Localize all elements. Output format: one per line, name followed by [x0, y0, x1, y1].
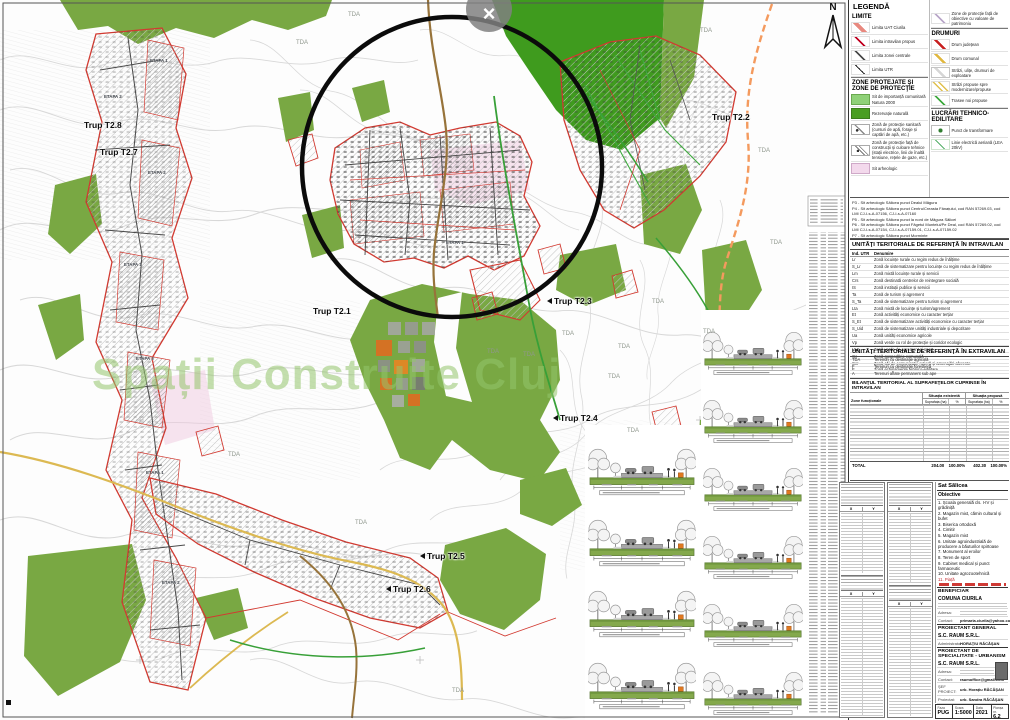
trasee-swatch: [931, 95, 950, 106]
utr-name: Terenuri cu destinație agricolă: [874, 357, 928, 362]
strazi-swatch: [931, 67, 950, 78]
compass: N: [820, 2, 846, 52]
legend-item-label: Sit de importanță comunitară Natura 2000: [872, 94, 928, 104]
bilant-table: BILANŢUL TERITORIAL AL SUPRAFEŢELOR CUPR…: [850, 378, 1009, 481]
legend-item: Limita intravilan propus: [851, 35, 928, 49]
utr-name: Zonă unități economice agricole: [874, 333, 932, 338]
utr-code: A: [852, 371, 874, 376]
legend-item: Zonă de protecție față de construcții și…: [851, 139, 928, 162]
utr-name: Zonă activități economice cu caracter te…: [874, 312, 953, 317]
bilant-total-row: TOTAL 204.00 100.00% 402.30 100.00%: [850, 461, 1009, 469]
legend-item-label: Zonă de protecție sanitară (cursuri de a…: [872, 122, 928, 137]
legend-item-label: Sit arheologic: [872, 166, 897, 171]
legend-item: Trasee noi propuse: [931, 94, 1009, 108]
utr-intravilan-title: UNITĂŢI TERITORIALE DE REFERINŢĂ ÎN INTR…: [850, 239, 1009, 250]
bilant-col-pct: %: [992, 399, 1009, 404]
legend-panel: LEGENDĂ LIMITE Limita UAT Ciurila Limita…: [848, 0, 1010, 720]
transformare-swatch: [931, 125, 950, 136]
rezervatie-swatch: [851, 108, 870, 119]
utr-row: S_Ta Zonă de sistematizare pentru turism…: [850, 298, 1009, 305]
coordinate-tables: XY XY XY XY: [839, 482, 935, 718]
utr-name: Zonă de turism și agrement: [874, 292, 924, 297]
adresa-label: Adresa:: [938, 669, 958, 674]
legend-item: Străzi propuse spre modernizare/propuse: [931, 80, 1009, 94]
coord-y-header: Y: [862, 507, 884, 511]
bilant-total-existing-pct: 100.00%: [944, 463, 965, 468]
utr-row: A Terenuri aflate permanent sub ape: [850, 371, 1009, 378]
archaeo-site-line: P6 - Sit arheologic Sălicea punct Făgetu…: [852, 222, 1007, 232]
utr-row: Et Zonă activități economice cu caracter…: [850, 312, 1009, 319]
utr-code: S_Et: [852, 319, 874, 324]
bilant-col-area: Suprafața (ha): [923, 399, 948, 404]
central-swatch: [851, 50, 870, 61]
bilant-col-pct: %: [948, 399, 965, 404]
utr-extravilan-title: UNITĂŢI TERITORIALE DE REFERINŢĂ ÎN EXTR…: [850, 346, 1009, 357]
utr-extravilan-table: UNITĂŢI TERITORIALE DE REFERINŢĂ ÎN EXTR…: [850, 346, 1009, 378]
objectives-titleblock: Sat Sălicea Obiective 1. Școala generală…: [935, 482, 1009, 703]
col-header-code: Ind. UTR: [852, 251, 874, 256]
utr-code: Crs: [852, 278, 874, 283]
utr-row: S_Uid Zonă de sistematizare unități indu…: [850, 326, 1009, 333]
legend-item: Străzi, ulițe, drumuri de exploatare: [931, 66, 1009, 80]
proiectant-specialitate-header: PROIECTANT DE SPECIALITATE - URBANISM: [937, 647, 1008, 661]
coord-y-header: Y: [862, 592, 884, 596]
data-value: 2021: [976, 710, 989, 716]
modernizare-swatch: [931, 81, 950, 92]
sanitara-swatch: [851, 124, 870, 135]
utr-name: Terenuri aflate permanent sub ape: [874, 371, 936, 376]
utr-code: Ta: [852, 292, 874, 297]
utr-row: Lr Zonă locuințe rurale cu regim redus d…: [850, 257, 1009, 264]
archaeo-site-line: P3 - Sit arheologic Sălicea punct Dealul…: [852, 200, 1007, 205]
utr-name: Zonă verde cu rol de protecție și corido…: [874, 340, 962, 345]
scara-value: 1:5000: [955, 710, 972, 716]
bilant-total-label: TOTAL: [852, 463, 923, 468]
plansa-nr-value: 6.2: [993, 714, 1006, 720]
utr-code: S_Lr: [852, 264, 874, 269]
legend-item: Sit de importanță comunitară Natura 2000: [851, 93, 928, 107]
comunal-swatch: [931, 53, 950, 64]
legend-lucrari-title: LUCRĂRI TEHNICO-EDILITARE: [931, 108, 1009, 124]
legend-item: Rezervație naturală: [851, 107, 928, 121]
arheologic-swatch: [851, 163, 870, 174]
objective-item: 1. Școala generală cls. I-IV și grădiniț…: [937, 500, 1008, 511]
utr-row: S_Et Zonă de sistematizare activități ec…: [850, 319, 1009, 326]
coord-x-header: X: [840, 507, 862, 511]
beneficiar-contact: primaria.ciurila@yahoo.com: [960, 618, 1010, 623]
objectives-title: Sat Sălicea: [937, 482, 1008, 491]
archaeo-site-line: P5 - Sit arheologic Sălicea punct la nor…: [852, 217, 1007, 222]
judetean-swatch: [931, 39, 950, 50]
legend-item: Linie electrică aeriană (LEA 20kV): [931, 138, 1009, 152]
utr-name: Zonă de sistematizare activități economi…: [874, 319, 984, 324]
utr-name: Zonă de sistematizare unități industrial…: [874, 326, 970, 331]
compass-arrow-icon: [821, 13, 845, 51]
tehnice-swatch: [851, 145, 870, 156]
plansa-nr-label: Planșa nr.: [993, 706, 1006, 714]
utr-code: TDA: [852, 357, 874, 362]
legend-item: Zone de protecție față de obiective cu v…: [931, 10, 1009, 28]
patrimoniu-swatch: [931, 13, 950, 24]
administrator-name: HORAŢIU RĂCĂŞAN: [960, 641, 1007, 646]
utr-row: Ua Zonă unități economice agricole: [850, 333, 1009, 340]
utr-row: Lm Zonă mixtă locuințe rurale și servici…: [850, 271, 1009, 278]
objective-item: 6. Unitate agroindustrială de producere …: [937, 538, 1008, 549]
coord-y-header: Y: [910, 602, 932, 606]
close-icon: ×: [483, 3, 496, 25]
utr-row: Ta Zonă de turism și agrement: [850, 291, 1009, 298]
col-header-name: Denumire: [874, 251, 893, 256]
utr-name: Zonă de sistematizare pentru locuințe cu…: [874, 264, 992, 269]
faza-value: PUG: [938, 710, 951, 716]
contact-label: Contact:: [938, 677, 958, 682]
legend-item-label: Zone de protecție față de obiective cu v…: [952, 11, 1009, 26]
map-canvas[interactable]: [0, 0, 848, 720]
utr-name: Zonă destinată centrelor de reintegrare …: [874, 278, 959, 283]
legend-item-label: Trasee noi propuse: [952, 98, 988, 103]
legend-item: Limita UAT Ciurila: [851, 21, 928, 35]
coordinate-table: XY XY: [839, 482, 885, 718]
legend-item-label: Limita zonei centrale: [872, 53, 910, 58]
utr-code: Et: [852, 312, 874, 317]
bilant-title: BILANŢUL TERITORIAL AL SUPRAFEŢELOR CUPR…: [850, 378, 1009, 392]
intravilan-swatch: [851, 36, 870, 47]
proiectat-name: urb. Sandra RĂCĂŞAN: [960, 697, 1007, 702]
proiectant-general-name: S.C. RAUM S.R.L.: [937, 632, 1008, 639]
beneficiar-name: COMUNA CIURILA: [937, 595, 1008, 602]
legend-item-label: Limita UAT Ciurila: [872, 25, 905, 30]
utr-name: Zonă mixtă locuințe rurale și servicii: [874, 271, 939, 276]
legend-item: Drum județean: [931, 38, 1009, 52]
contact-label: Contact:: [938, 618, 958, 623]
proiectat-label: Proiectat:: [938, 697, 958, 702]
objective-item: 11. Piață: [937, 577, 1008, 583]
objectives-red-note: [939, 583, 1006, 586]
utr-code: S_Ta: [852, 299, 874, 304]
legend-drumuri-title: DRUMURI: [931, 28, 1009, 38]
plan-sheet: Trup T2.8 Trup T2.7 Trup T2.1 Trup T2.3: [0, 0, 1010, 720]
legend-item-label: Rezervație naturală: [872, 111, 908, 116]
legend-item-label: Străzi, ulițe, drumuri de exploatare: [952, 68, 1009, 78]
legend-item: Limita zonei centrale: [851, 49, 928, 63]
coord-x-header: X: [840, 592, 862, 596]
utr-name: Zonă locuințe rurale cu regim redus de î…: [874, 257, 960, 262]
utr-code: Lr: [852, 257, 874, 262]
adresa-label: Adresa:: [938, 610, 958, 615]
legend-item-label: Punct de transformare: [952, 128, 993, 133]
legend-item-label: Limita UTR: [872, 67, 893, 72]
bilant-total-proposed-area: 402.30: [965, 463, 986, 468]
utr-name: Zonă de sistematizare pentru turism și a…: [874, 299, 962, 304]
utr-code: S_Uid: [852, 326, 874, 331]
utr-code: F: [852, 364, 874, 369]
administrator-label: Administrator:: [938, 641, 958, 646]
utr-row: TDA Terenuri cu destinație agricolă: [850, 357, 1009, 364]
sef-proiect-label: ŞEF PROIECT:: [938, 684, 958, 694]
utr-row: IS Zonă instituții publice și servicii: [850, 285, 1009, 292]
utr-name: Zonă instituții publice și servicii: [874, 285, 930, 290]
legend-item-label: Drum județean: [952, 42, 979, 47]
legend-item: Limita UTR: [851, 63, 928, 77]
objectives-subtitle: Obiective: [937, 491, 1008, 500]
legend-item-label: Linie electrică aeriană (LEA 20kV): [952, 140, 1009, 150]
archaeo-site-line: P4 - Sit arheologic Sălicea punct Centru…: [852, 206, 1007, 216]
legend-item: Punct de transformare: [931, 124, 1009, 138]
utr-code: IS: [852, 285, 874, 290]
coord-y-header: Y: [910, 507, 932, 511]
sef-proiect-name: urb. Horațiu RĂCĂŞAN: [960, 687, 1007, 692]
coord-x-header: X: [888, 602, 910, 606]
uat-swatch: [851, 22, 870, 33]
archaeo-site-line: P7 - Sit arheologic Sălicea punct Mormin…: [852, 233, 1007, 238]
objective-item: 9. Cabinet medical și punct farmaceutic: [937, 560, 1008, 571]
legend-limite-title: LIMITE: [851, 12, 928, 21]
utr-code: Lm: [852, 271, 874, 276]
utr-name: Zonă mixtă de locuințe și turism/agremen…: [874, 306, 950, 311]
legend-item-label: Zonă de protecție față de construcții și…: [872, 140, 928, 160]
utr-row: Lta Zonă mixtă de locuințe și turism/agr…: [850, 305, 1009, 312]
objective-item: 2. Magazin mixt, cămin cultural și bufet: [937, 511, 1008, 522]
utr-row: F Terenuri cu destinație forestieră: [850, 364, 1009, 371]
utr-row: Crs Zonă destinată centrelor de reintegr…: [850, 278, 1009, 285]
bilant-total-existing-area: 204.00: [923, 463, 944, 468]
beneficiar-header: BENEFICIAR: [937, 587, 1008, 596]
legend-item-label: Drum comunal: [952, 56, 979, 61]
legend-item-label: Străzi propuse spre modernizare/propuse: [952, 82, 1009, 92]
coord-x-header: X: [888, 507, 910, 511]
lea-swatch: [931, 139, 950, 150]
titleblock-bottom-strip: FazaPUG Scara1:5000 Data2021 Planșa nr.6…: [935, 704, 1009, 719]
utr-code: Ua: [852, 333, 874, 338]
natura2000-swatch: [851, 94, 870, 105]
legend-item: Sit arheologic: [851, 162, 928, 176]
bilant-col-area: Suprafața (ha): [966, 399, 992, 404]
bilant-rows-microtext: [850, 405, 1009, 461]
utr-name: Terenuri cu destinație forestieră: [874, 364, 931, 369]
legend-item: Drum comunal: [931, 52, 1009, 66]
utr-code: Vp: [852, 340, 874, 345]
legend-item-label: Limita intravilan propus: [872, 39, 915, 44]
legend-section: LEGENDĂ LIMITE Limita UAT Ciurila Limita…: [850, 0, 1009, 198]
legend-protejate-title: ZONE PROTEJATE ŞI ZONE DE PROTECŢIE: [851, 77, 928, 93]
proiectant-general-header: PROIECTANT GENERAL: [937, 624, 1008, 633]
compass-n-label: N: [820, 2, 846, 13]
archaeo-sites-note: P3 - Sit arheologic Sălicea punct Dealul…: [850, 198, 1009, 239]
utr-swatch: [851, 64, 870, 75]
utr-row: S_Lr Zonă de sistematizare pentru locuin…: [850, 264, 1009, 271]
coordinate-table: XY XY: [887, 482, 933, 718]
bilant-total-proposed-pct: 100.00%: [986, 463, 1007, 468]
stamp-logo: [995, 662, 1008, 680]
legend-item: Zonă de protecție sanitară (cursuri de a…: [851, 121, 928, 139]
legend-title: LEGENDĂ: [851, 0, 928, 12]
utr-code: Lta: [852, 306, 874, 311]
bilant-col-zone: Zone funcționale: [850, 393, 923, 404]
